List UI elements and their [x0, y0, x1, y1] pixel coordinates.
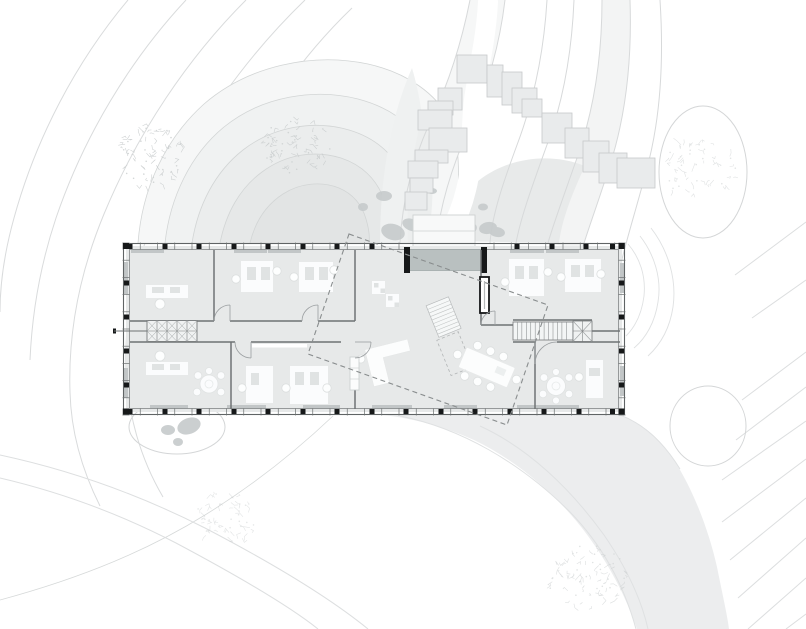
stair-east-layer	[513, 321, 592, 342]
tree-dot	[607, 578, 609, 580]
terrace-step	[410, 178, 433, 193]
tree-dot	[276, 140, 278, 142]
tree-dot	[176, 165, 178, 167]
desk	[246, 366, 273, 403]
tree-dot	[575, 594, 577, 596]
column-mark	[619, 243, 625, 249]
tree-dot	[612, 563, 614, 565]
tree-dot	[296, 135, 298, 137]
round-table	[547, 377, 566, 396]
chair	[544, 268, 552, 276]
tree-dot	[140, 140, 142, 142]
column-mark	[610, 409, 615, 414]
desk-monitor	[152, 364, 164, 370]
tree-dot	[294, 139, 296, 141]
column-mark	[619, 383, 624, 388]
desk-monitor	[310, 372, 319, 385]
tree-dot	[613, 553, 615, 555]
shrub-blob	[161, 425, 175, 435]
site-plan-drawing	[0, 0, 806, 629]
terrace-step	[418, 110, 452, 130]
tree-dot	[695, 164, 697, 166]
tree-dot	[599, 549, 601, 551]
tree-dot	[145, 161, 147, 163]
tree-dot	[142, 131, 144, 133]
facade-spandrel	[620, 366, 624, 396]
tree-dot	[240, 526, 242, 528]
tree-dot	[572, 553, 574, 555]
tree-dot	[735, 167, 737, 169]
round-table	[553, 397, 560, 404]
column-mark	[124, 383, 129, 388]
tree-dot	[162, 169, 164, 171]
lounge-table	[388, 296, 393, 301]
tree-dot	[238, 514, 240, 516]
column-mark	[370, 244, 375, 249]
tree-dot	[153, 181, 155, 183]
tree-dot	[238, 510, 240, 512]
tree-dot	[680, 156, 682, 158]
chair	[290, 273, 298, 281]
whiteboard	[252, 344, 307, 348]
column-mark	[370, 409, 375, 414]
tree-dot	[689, 149, 691, 151]
column-mark	[542, 409, 547, 414]
chair	[323, 384, 331, 392]
tree-dot	[669, 180, 671, 182]
tree-dot	[219, 503, 221, 505]
tree-dot	[290, 121, 292, 123]
column-mark	[335, 244, 340, 249]
tree-dot	[619, 558, 621, 560]
column-mark	[301, 244, 306, 249]
tree-dot	[592, 562, 594, 564]
column-mark	[124, 349, 129, 354]
desk-monitor	[261, 267, 270, 280]
lounge-table	[395, 303, 400, 308]
tree-dot	[296, 169, 298, 171]
tree-dot	[170, 171, 172, 173]
tree-dot	[143, 173, 145, 175]
tree-dot	[690, 144, 692, 146]
tree-dot	[270, 154, 272, 156]
tree-dot	[166, 130, 168, 132]
column-mark	[550, 244, 555, 249]
shrub-blob	[358, 203, 368, 211]
tree-dot	[208, 519, 210, 521]
round-table	[200, 375, 218, 393]
desk-monitor	[319, 267, 328, 280]
tree-dot	[596, 545, 598, 547]
tree-dot	[600, 569, 602, 571]
tree-dot	[294, 135, 296, 137]
chair	[575, 373, 583, 381]
desk-monitor	[152, 287, 164, 293]
chair	[501, 278, 509, 286]
column-mark	[404, 409, 409, 414]
tree-dot	[124, 167, 126, 169]
tree-dot	[596, 588, 598, 590]
column-mark	[619, 281, 624, 286]
whiteboard-layer	[252, 344, 307, 348]
tree-dot	[669, 152, 671, 154]
tree-dot	[329, 148, 331, 150]
tree-dot	[623, 578, 625, 580]
tree-dot	[696, 180, 698, 182]
tree-dot	[579, 546, 581, 548]
desk-monitor	[529, 266, 538, 279]
round-table	[565, 374, 573, 382]
tree-dot	[239, 521, 241, 523]
column-mark	[473, 409, 478, 414]
desk-monitor	[571, 265, 580, 277]
tree-dot	[123, 149, 125, 151]
desk	[565, 259, 601, 292]
shelf	[350, 357, 359, 390]
tree-dot	[230, 518, 232, 520]
column-mark	[577, 409, 582, 414]
tree-dot	[168, 148, 170, 150]
chair	[155, 299, 165, 309]
tree-dot	[197, 508, 199, 510]
column-mark	[123, 243, 129, 249]
desk-monitor	[170, 364, 180, 370]
stair-west-layer	[147, 321, 197, 342]
tree-dot	[704, 149, 706, 151]
chair	[557, 273, 565, 281]
desk	[509, 259, 544, 296]
desk-monitor	[247, 267, 256, 280]
tree-dot	[270, 156, 272, 158]
column-mark	[610, 244, 615, 249]
entrance-ramp	[408, 250, 483, 271]
tree-dot	[270, 127, 272, 129]
tree-dot	[239, 504, 241, 506]
tree-dot	[609, 587, 611, 589]
tree-dot	[128, 153, 130, 155]
tree-dot	[672, 188, 674, 190]
column-mark	[335, 409, 340, 414]
round-table	[565, 390, 573, 398]
fireplace-unit-layer	[480, 277, 489, 313]
tree-dot	[145, 128, 147, 130]
tree-dot	[317, 158, 319, 160]
round-table	[206, 368, 213, 375]
desk-monitor	[515, 266, 524, 279]
round-table	[217, 372, 225, 380]
tree-dot	[289, 172, 291, 174]
wall-shelf-layer	[350, 357, 359, 390]
terrace-step	[405, 192, 427, 210]
facade-spandrel	[124, 262, 128, 294]
facade-spandrel	[620, 263, 624, 293]
terrace-step	[487, 65, 503, 97]
tree-dot	[576, 569, 578, 571]
tree-dot	[689, 153, 691, 155]
column-mark	[123, 409, 129, 415]
entrance-ramp	[404, 247, 410, 273]
column-mark	[232, 409, 237, 414]
tree-dot	[218, 526, 220, 528]
column-mark	[584, 244, 589, 249]
chair	[238, 384, 246, 392]
round-table	[540, 374, 548, 382]
tree-dot	[156, 130, 158, 132]
column-mark	[301, 409, 306, 414]
column-mark	[124, 281, 129, 286]
tree-dot	[246, 522, 248, 524]
tree-dot	[267, 137, 269, 139]
tree-dot	[284, 167, 286, 169]
entrance-layer	[404, 247, 487, 273]
round-table	[539, 390, 547, 398]
terrace-step	[457, 55, 487, 83]
column-mark	[163, 409, 168, 414]
desk-monitor	[295, 372, 304, 385]
tree-dot	[550, 587, 552, 589]
round-table	[194, 372, 202, 380]
column-mark	[439, 409, 444, 414]
chair	[597, 270, 605, 278]
column-mark	[197, 244, 202, 249]
tree-dot	[282, 143, 284, 145]
column-mark	[232, 244, 237, 249]
tree-dot	[133, 178, 135, 180]
terrace-step	[408, 161, 438, 178]
column-mark	[619, 409, 625, 415]
tree-dot	[702, 158, 704, 160]
floor-plan-svg	[0, 0, 806, 629]
tree-dot	[594, 553, 596, 555]
tree-dot	[602, 586, 604, 588]
tree-dot	[281, 150, 283, 152]
tree-dot	[253, 524, 255, 526]
shrub-blob	[478, 204, 488, 211]
round-table	[193, 388, 201, 396]
tree-dot	[170, 137, 172, 139]
lounge-table	[381, 289, 386, 294]
column-mark	[266, 244, 271, 249]
shrub-blob	[173, 438, 183, 446]
tree-dot	[288, 132, 290, 134]
column-mark	[515, 244, 520, 249]
tree-dot	[127, 141, 129, 143]
tree-dot	[698, 144, 700, 146]
chair	[232, 275, 240, 283]
chair	[155, 351, 165, 361]
desk-monitor	[305, 267, 314, 280]
lounge-table	[374, 283, 379, 288]
column-mark	[619, 349, 624, 354]
desk	[586, 360, 603, 398]
terrace-step	[429, 128, 467, 152]
tree-dot	[291, 161, 293, 163]
tree-dot	[308, 152, 310, 154]
column-mark	[163, 244, 168, 249]
tree-dot	[586, 576, 588, 578]
tree-dot	[721, 183, 723, 185]
desk-monitor	[251, 373, 259, 385]
desk-monitor	[589, 368, 600, 376]
round-table	[217, 388, 225, 396]
entrance-ramp	[481, 247, 487, 273]
tree-dot	[144, 149, 146, 151]
column-mark	[124, 315, 129, 320]
tree-dot	[153, 177, 155, 179]
tree-dot	[245, 504, 247, 506]
tree-dot	[126, 173, 128, 175]
tree-dot	[206, 530, 208, 532]
round-table	[553, 369, 560, 376]
tree-dot	[730, 158, 732, 160]
terrace-step	[522, 99, 542, 117]
column-mark	[619, 315, 624, 320]
terrace-step	[617, 158, 655, 188]
chair	[282, 384, 290, 392]
chair	[273, 267, 281, 275]
tree-dot	[266, 157, 268, 159]
desk-monitor	[585, 265, 594, 277]
tree-dot	[551, 578, 553, 580]
desk-monitor	[170, 287, 180, 293]
shrub-blob	[376, 191, 392, 201]
tree-dot	[599, 564, 601, 566]
tree-dot	[229, 527, 231, 529]
tree-dot	[215, 493, 217, 495]
column-mark	[266, 409, 271, 414]
tree-dot	[678, 185, 680, 187]
column-mark	[197, 409, 202, 414]
tree-dot	[681, 165, 683, 167]
